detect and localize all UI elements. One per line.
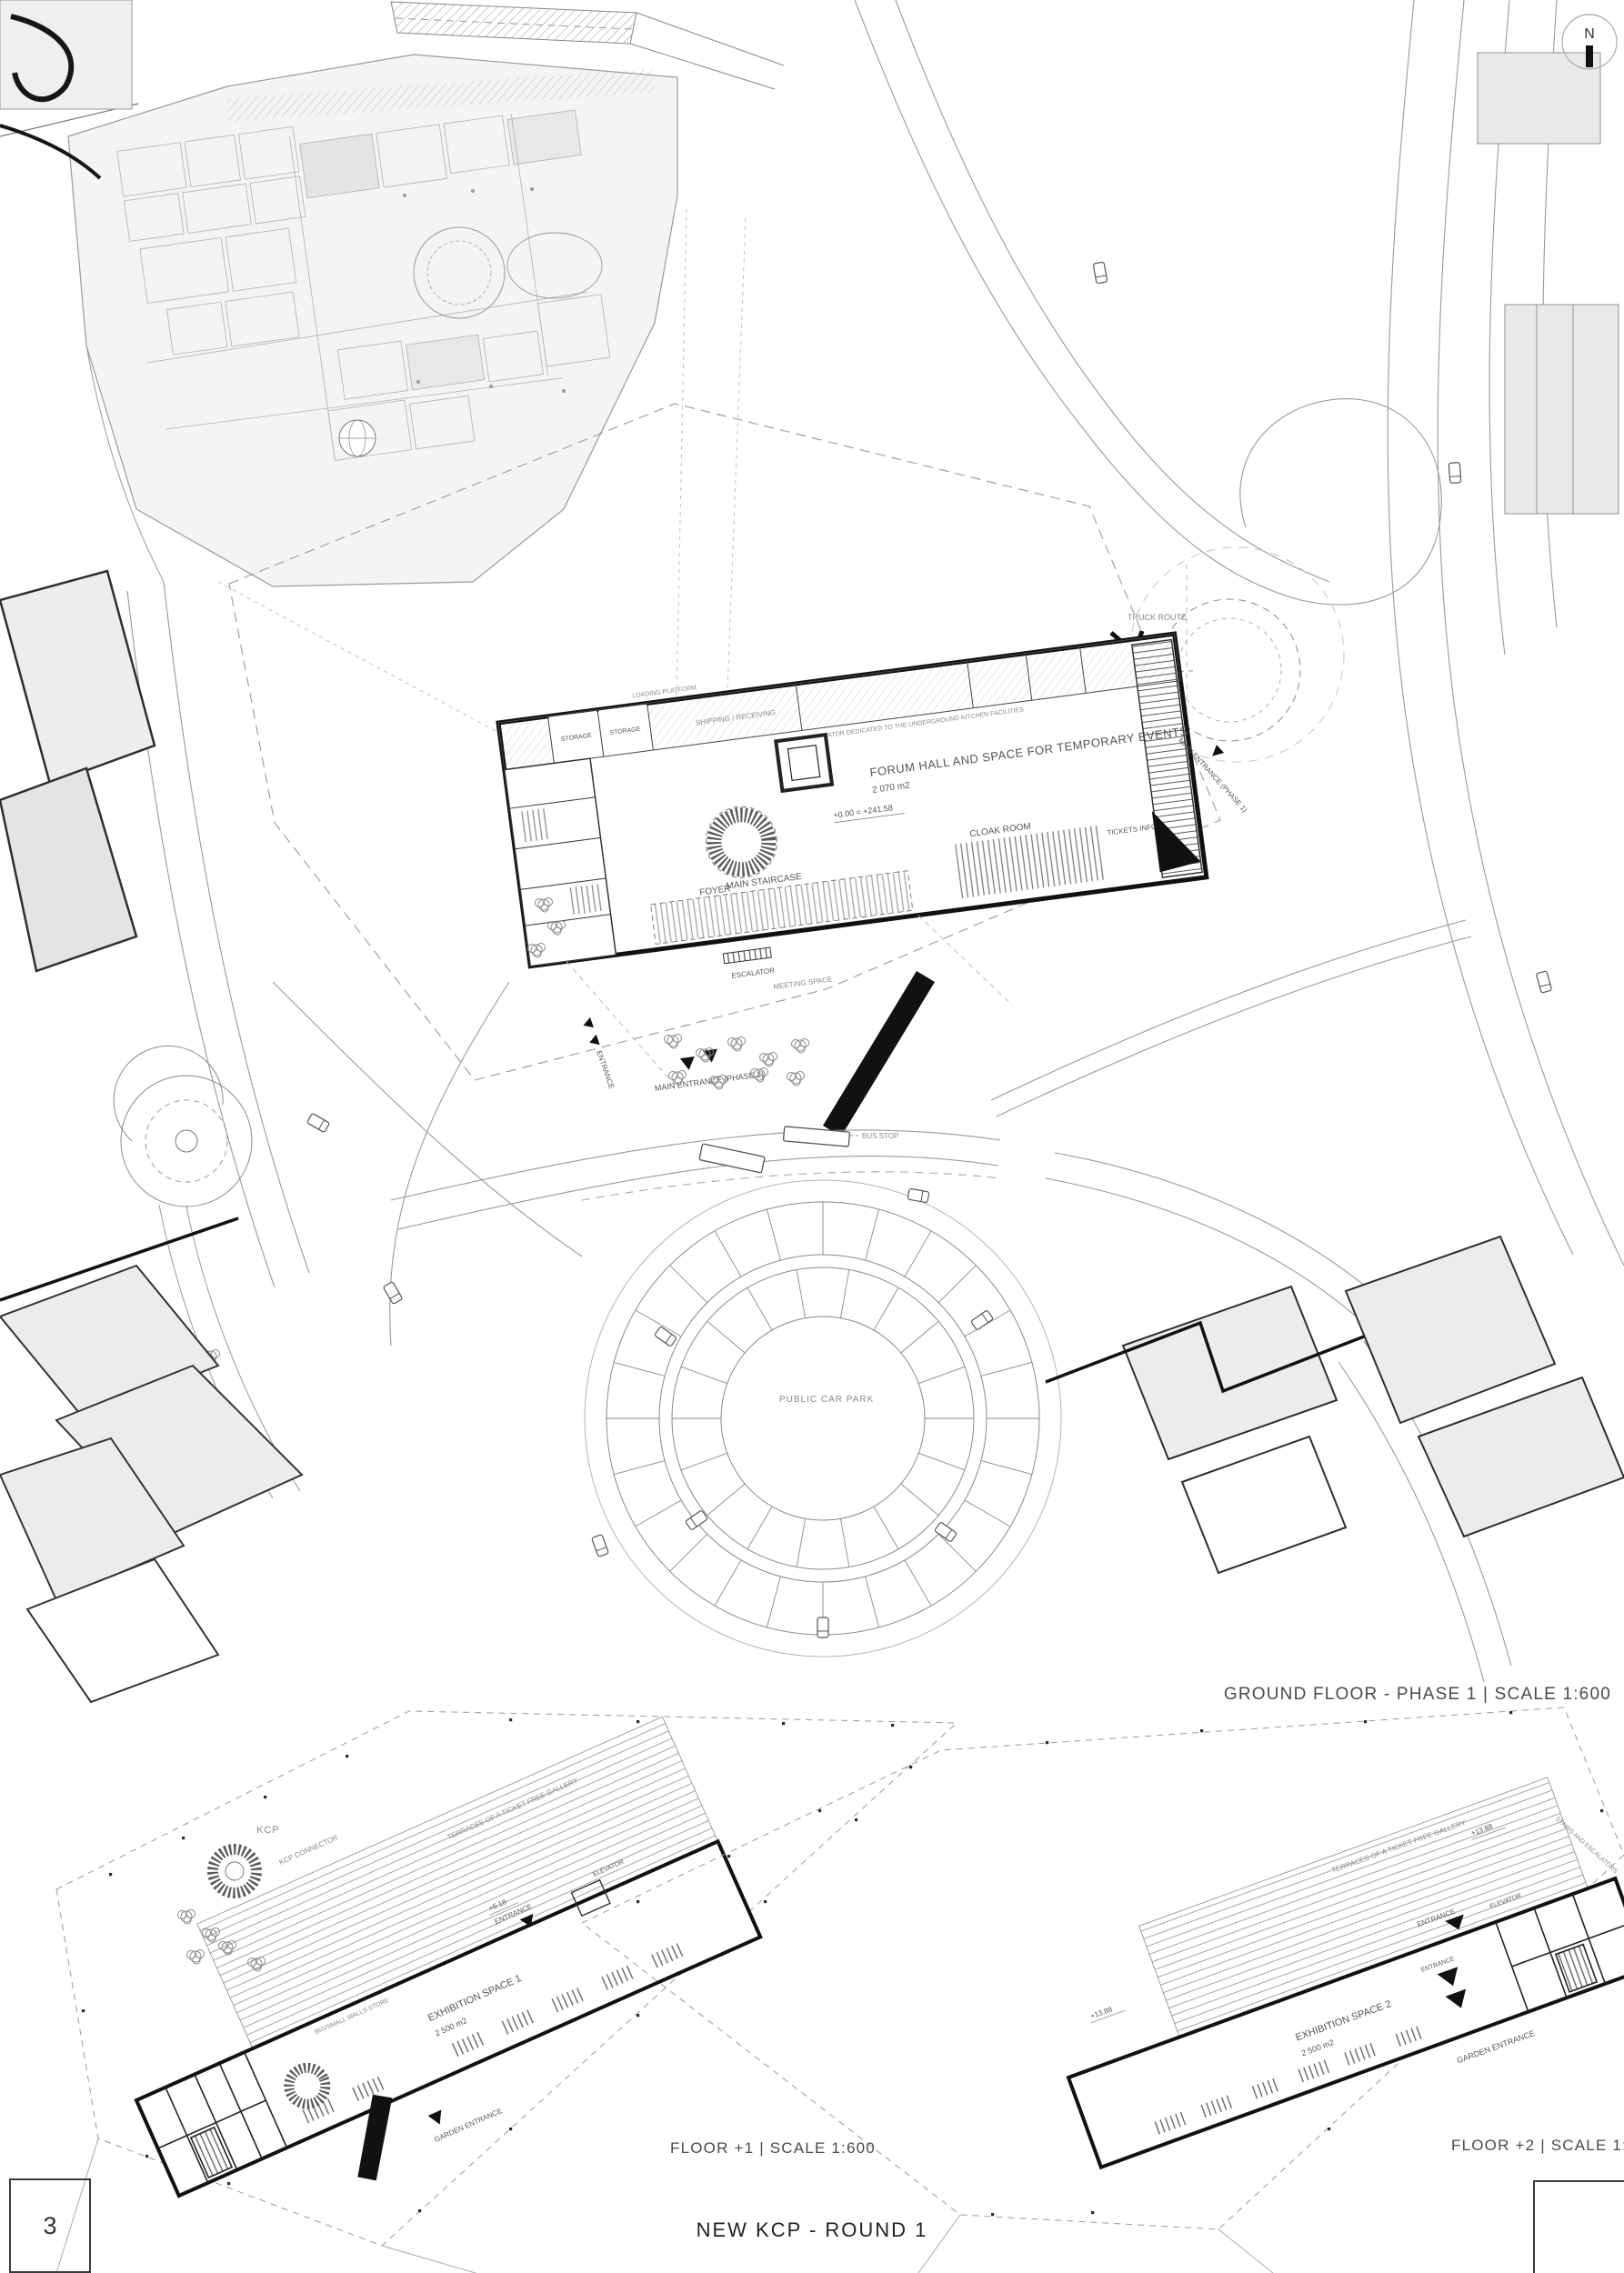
escalator-symbol [723,947,771,964]
meeting-space-label: MEETING SPACE [773,976,833,991]
floor1-plan: KCP BIG/SMALL WALLS STORE EXHIBITION SPA… [56,1693,957,2273]
kcp-label: KCP [256,1825,280,1836]
page-number-box: 3 [9,2178,91,2273]
presentation-board: TRUCK ROUTE STORAGE STORAGE SHIPPING / R… [0,0,1624,2273]
main-entrance-label: MAIN ENTRANCE (PHASE 1) [654,1069,764,1093]
site-plan-drawing: TRUCK ROUTE STORAGE STORAGE SHIPPING / R… [0,0,1624,2273]
west-blocks [0,571,155,971]
west-entrance: ENTRANCE [582,1017,617,1091]
plaza-globe-feature [339,420,376,456]
outer-stalls [606,1202,1039,1635]
bus-stop-label: BUS STOP [862,1132,898,1140]
kcp-connector-label: KCP CONNECTOR [278,1833,340,1867]
floor2-plan: +13.88 EXHIBITION SPACE 2 2 500 m2 ENTRA… [582,1707,1624,2273]
caption-floor1: FLOOR +1 | SCALE 1:600 [670,2139,876,2158]
svg-text:ENTRANCE: ENTRANCE [595,1049,616,1089]
kcp-spiral-stair [213,1849,256,1893]
public-car-park: PUBLIC CAR PARK [585,1180,1061,1657]
corner-box [1533,2180,1624,2273]
truck-route-label: TRUCK ROUTE [1128,613,1187,622]
bus-stop: BUS STOP [699,1126,898,1173]
public-car-park-label: PUBLIC CAR PARK [779,1395,874,1405]
caption-floor2: FLOOR +2 | SCALE 1:600 [1451,2137,1624,2155]
existing-kcp-complex [68,55,677,586]
floor2-building: +13.88 EXHIBITION SPACE 2 2 500 m2 ENTRA… [1028,1766,1624,2192]
board-title: NEW KCP - ROUND 1 [0,2218,1624,2242]
floor1-garden-entrance-label: GARDEN ENTRANCE [433,2107,503,2144]
north-label: N [1584,26,1595,42]
inner-stalls [672,1270,974,1567]
north-arrow-icon: N [1562,15,1617,69]
caption-ground-floor: GROUND FLOOR - PHASE 1 | SCALE 1:600 [1224,1685,1611,1705]
elevator-core [776,735,832,791]
floor2-level: +13.88 [1089,2005,1114,2020]
floor1-building: BIG/SMALL WALLS STORE EXHIBITION SPACE 1… [70,1693,787,2257]
page-number: 3 [43,2212,56,2240]
escalator-label: ESCALATOR [731,966,776,980]
southeast-blocks [1046,1237,1624,1573]
southwest-blocks [0,1218,302,1702]
plaza-ramp [823,971,935,1136]
